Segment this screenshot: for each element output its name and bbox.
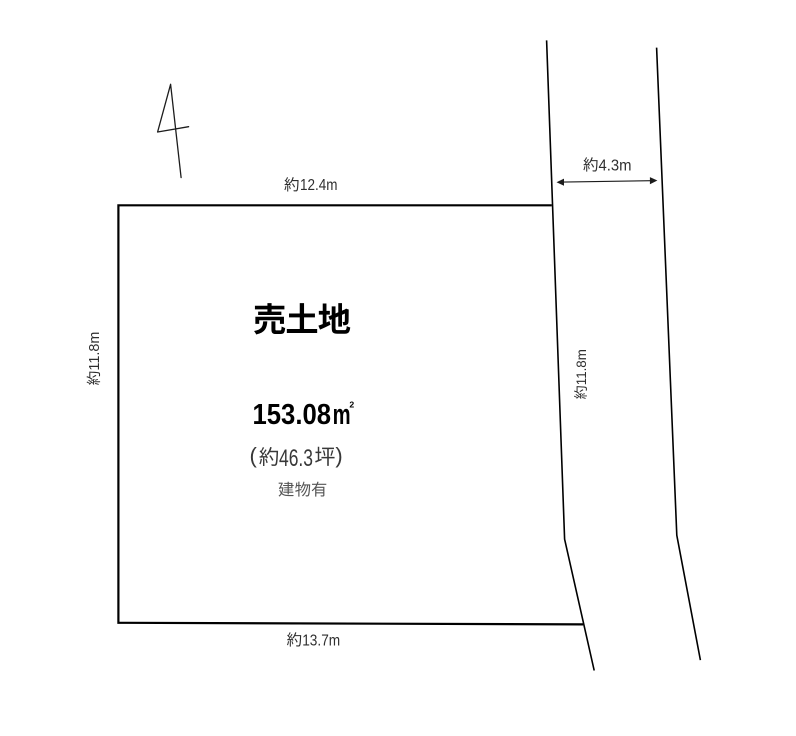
svg-text:12.4m: 12.4m <box>300 177 338 194</box>
svg-text:46.3: 46.3 <box>279 445 313 472</box>
svg-text:(: ( <box>250 443 258 468</box>
svg-text:2: 2 <box>349 399 354 409</box>
svg-text:): ) <box>335 443 342 468</box>
svg-text:13.7m: 13.7m <box>302 632 340 649</box>
svg-text:11.8m: 11.8m <box>87 332 103 371</box>
svg-text:m: m <box>333 399 351 431</box>
svg-text:4.3m: 4.3m <box>599 157 632 174</box>
svg-text:153.08: 153.08 <box>253 399 332 431</box>
svg-text:11.8m: 11.8m <box>573 349 589 385</box>
